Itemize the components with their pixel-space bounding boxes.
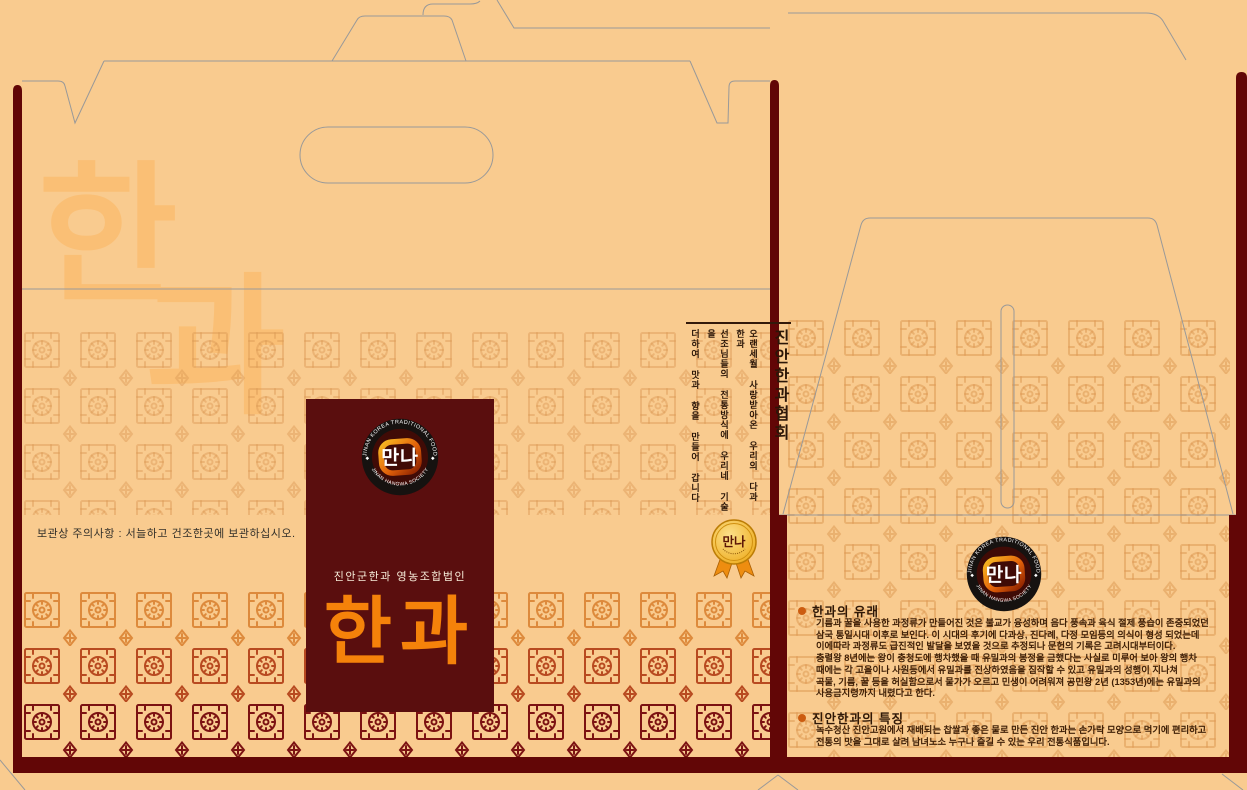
medal-label: 만나 (722, 534, 746, 549)
logo-separator-icon: ◆ (431, 455, 435, 460)
section-features-body: 녹수청산 진안고원에서 재배되는 찹쌀과 좋은 물로 만든 진안 한과는 손가락… (816, 725, 1236, 748)
brand-title: 한과 (306, 591, 494, 672)
association-line: 더하여 맛과 향을 만들어 갑니다 (689, 329, 702, 512)
bullet-icon (798, 714, 806, 722)
association-title: 진안한과협회 (767, 329, 791, 512)
logo-separator-icon: ◆ (970, 572, 974, 577)
brand-subtitle: 진안군한과 영농조합법인 (306, 568, 494, 584)
logo-center-label: 만나 (986, 564, 1022, 586)
storage-notice: 보관상 주의사항 : 서늘하고 건조한곳에 보관하십시오. (37, 525, 296, 541)
logo-separator-icon: ◆ (1034, 572, 1038, 577)
quality-medal: 만나 (706, 518, 762, 580)
logo-separator-icon: ◆ (365, 455, 369, 460)
association-line: 선조님들의 전통방식에 우리네 기술을 (705, 329, 731, 512)
brand-panel: JINAN KOREA TRADITIONAL FOOD JINAN HANGW… (306, 399, 494, 712)
hangwa-package-dieline: 한 과 (0, 0, 1247, 790)
manna-logo: JINAN KOREA TRADITIONAL FOOD JINAN HANGW… (966, 536, 1042, 612)
bullet-icon (798, 607, 806, 615)
association-block: 진안한과협회 오랜세월 사랑받아온 우리의 다과 한과 선조님들의 전통방식에 … (686, 322, 791, 512)
section-origin-body: 기름과 꿀을 사용한 과정류가 만들어진 것은 불교가 융성하며 음다 풍속과 … (816, 618, 1236, 700)
association-line: 오랜세월 사랑받아온 우리의 다과 한과 (734, 329, 760, 512)
manna-logo: JINAN KOREA TRADITIONAL FOOD JINAN HANGW… (361, 418, 439, 496)
logo-center-label: 만나 (381, 447, 418, 469)
